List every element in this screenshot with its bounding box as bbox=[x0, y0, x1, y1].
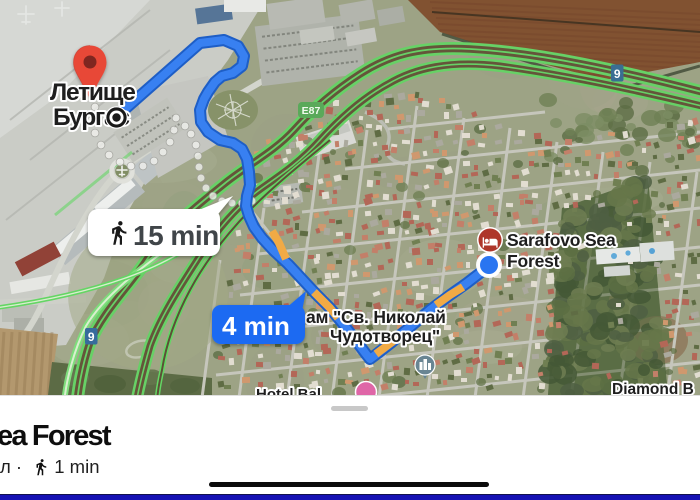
svg-text:4 min: 4 min bbox=[222, 311, 290, 341]
svg-text:15 min: 15 min bbox=[133, 220, 219, 251]
